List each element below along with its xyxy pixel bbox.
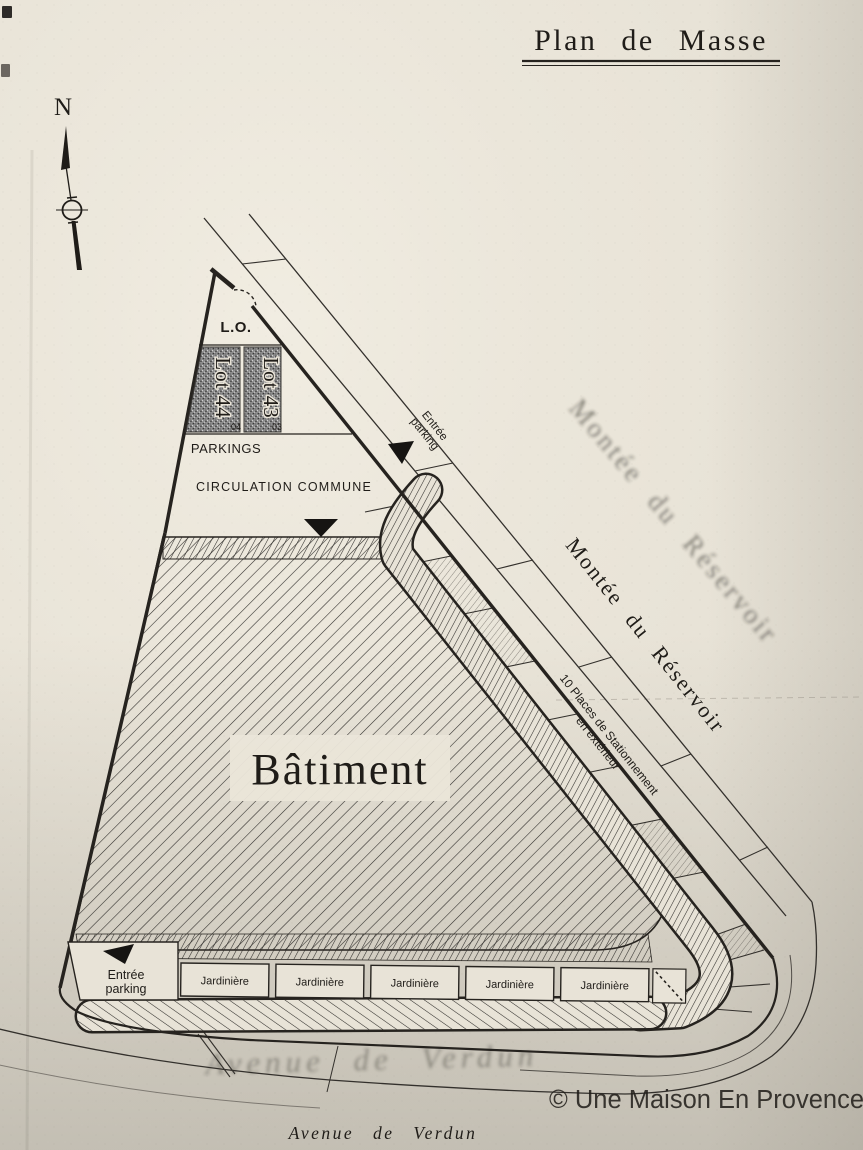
jardiniere-box: Jardinière	[276, 964, 364, 998]
scanned-site-plan: Montée du Réservoir Avenue de Verdun	[0, 0, 863, 1150]
north-label: N	[54, 94, 72, 121]
jardiniere-label: Jardinière	[581, 980, 629, 993]
circulation-label: CIRCULATION COMMUNE	[196, 480, 372, 494]
jardiniere-label: Jardinière	[486, 979, 534, 992]
end-planter-box	[653, 969, 686, 1003]
jardiniere-label: Jardinière	[296, 976, 344, 989]
jardiniere-box: Jardinière	[466, 966, 554, 1000]
building-north-wall-band	[163, 537, 404, 559]
building-label: Bâtiment	[251, 745, 428, 794]
lot-43-label: Lot 43	[259, 357, 283, 418]
plan-canvas: Montée du Réservoir Avenue de Verdun	[0, 0, 863, 1150]
page-title: Plan de Masse	[534, 24, 768, 57]
building-label-group: Bâtiment	[230, 735, 450, 801]
jardiniere-row: Jardinière Jardinière Jardinière Jardini…	[181, 963, 686, 1003]
jardiniere-box: Jardinière	[561, 968, 649, 1002]
jardiniere-box: Jardinière	[181, 963, 269, 997]
watermark: © Une Maison En Provence	[549, 1086, 863, 1114]
parkings-label: PARKINGS	[191, 441, 261, 456]
entrance-bottom-line1: Entrée	[108, 968, 145, 982]
jardiniere-label: Jardinière	[391, 978, 439, 991]
entrance-bottom-line2: parking	[106, 982, 147, 996]
street-bottom-label: Avenue de Verdun	[288, 1123, 478, 1143]
paper-speck	[2, 6, 12, 18]
lo-room-label: L.O.	[220, 319, 251, 336]
lot-43-number: 03	[272, 422, 282, 432]
paper-speck	[1, 64, 10, 77]
jardiniere-label: Jardinière	[201, 975, 249, 988]
lot-44-label: Lot 44	[211, 357, 235, 418]
lot-44-number: 04	[231, 422, 241, 432]
jardiniere-box: Jardinière	[371, 965, 459, 999]
